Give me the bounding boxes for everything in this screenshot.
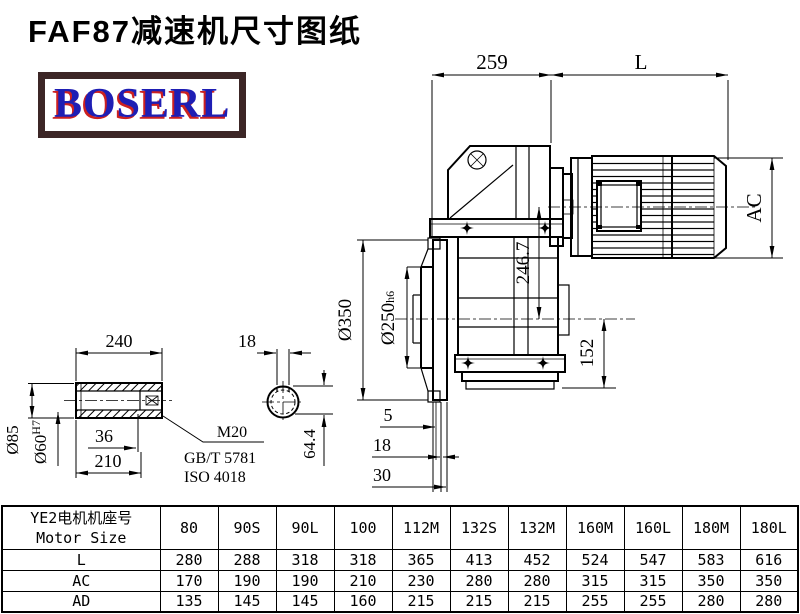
table-cell: 210 [334,570,392,591]
dim-210-label: 210 [95,451,122,471]
motor-size-table: YE2电机机座号 Motor Size 80 90S 90L 100 112M … [1,505,799,613]
table-row-AD: AD 135 145 145 160 215 215 215 255 255 2… [2,591,798,612]
dim-ac-label: AC [742,193,766,222]
table-cell: 215 [392,591,450,612]
dim-18-label: 18 [373,435,391,455]
shaft-wall-hatch-bottom [77,411,161,418]
table-row-L: L 280 288 318 318 365 413 452 524 547 58… [2,549,798,570]
table-cell: 215 [450,591,508,612]
table-cell: 255 [624,591,682,612]
shaft-wall-hatch-top [77,384,161,391]
dim-350-label: Ø350 [335,299,356,341]
table-cell: 280 [160,549,218,570]
table-header-cn: YE2电机机座号 [3,508,160,528]
table-cell: 280 [508,570,566,591]
table-cell: 135 [160,591,218,612]
row-label: AD [2,591,160,612]
base-plate [462,372,558,389]
dim-64-4-label: 64.4 [300,429,319,459]
table-cell: 230 [392,570,450,591]
table-header-row: YE2电机机座号 Motor Size 80 90S 90L 100 112M … [2,506,798,549]
col-header: 132S [450,506,508,549]
table-cell: 365 [392,549,450,570]
col-header: 132M [508,506,566,549]
dim-36-label: 36 [95,426,113,446]
dimension-60h7: Ø60H7 [29,412,58,466]
table-cell: 318 [276,549,334,570]
thread-spec-label: M20 [217,424,247,441]
thread-callout: M20 GB/T 5781 ISO 4018 [163,416,264,486]
dimension-240: 240 [76,331,162,381]
col-header: 90L [276,506,334,549]
gear-housing [448,146,550,219]
col-header: 80 [160,506,218,549]
table-cell: 288 [218,549,276,570]
standard-iso-label: ISO 4018 [184,469,246,486]
dim-5-label: 5 [384,405,393,425]
row-label: L [2,549,160,570]
upper-bolt-flange [430,219,563,237]
dim-246-7-label: 246.7 [513,242,534,285]
drawing-sheet: FAF87减速机尺寸图纸 BOSERL [0,0,800,614]
table-row-AC: AC 170 190 190 210 230 280 280 315 315 3… [2,570,798,591]
table-header-motor-size: YE2电机机座号 Motor Size [2,506,160,549]
table-cell: 350 [682,570,740,591]
table-cell: 583 [682,549,740,570]
motor-nameplate [597,181,641,231]
dimension-18-keyway: 18 [238,331,311,385]
dim-60h7-label: Ø60H7 [29,420,50,464]
col-header: 90S [218,506,276,549]
table-cell: 280 [450,570,508,591]
dim-L-label: L [635,50,648,74]
col-header: 180M [682,506,740,549]
col-header: 100 [334,506,392,549]
table-cell: 280 [682,591,740,612]
dim-85-label: Ø85 [3,425,22,454]
lower-bolt-flange [455,355,565,372]
dimension-250h6: Ø250h6 [378,267,421,368]
table-cell: 350 [740,570,798,591]
col-header: 160L [624,506,682,549]
table-cell: 255 [566,591,624,612]
bolt-cross-icon [468,151,486,169]
dim-250h6-label: Ø250h6 [378,291,399,345]
row-label: AC [2,570,160,591]
table-cell: 215 [508,591,566,612]
table-cell: 616 [740,549,798,570]
main-view: 259 L [335,50,783,492]
table-cell: 280 [740,591,798,612]
table-cell: 190 [218,570,276,591]
dim-30-label: 30 [373,465,391,485]
dim-259-label: 259 [476,50,508,74]
dimension-152: 152 [562,319,616,388]
table-cell: 160 [334,591,392,612]
table-cell: 524 [566,549,624,570]
col-header: 180L [740,506,798,549]
table-cell: 318 [334,549,392,570]
output-flange [413,238,447,402]
table-cell: 190 [276,570,334,591]
dim-152-label: 152 [577,339,598,368]
table-header-en: Motor Size [3,528,160,548]
table-cell: 315 [566,570,624,591]
table-cell: 547 [624,549,682,570]
table-cell: 145 [276,591,334,612]
table-cell: 452 [508,549,566,570]
shaft-section-view: 18 64.4 [238,331,333,466]
dimension-ac: AC [714,158,783,258]
dim-18-keyway-label: 18 [238,331,256,351]
dimension-36: 36 [88,414,138,452]
col-header: 112M [392,506,450,549]
dimension-5-18-30: 5 18 30 [372,402,459,492]
table-cell: 413 [450,549,508,570]
table-cell: 170 [160,570,218,591]
col-header: 160M [566,506,624,549]
table-cell: 145 [218,591,276,612]
dimension-64-4: 64.4 [293,370,333,466]
standard-gb-label: GB/T 5781 [184,450,256,467]
dim-240-label: 240 [106,331,133,351]
table-cell: 315 [624,570,682,591]
shaft-detail-view: 240 Ø85 Ø60H7 36 210 [3,331,264,486]
